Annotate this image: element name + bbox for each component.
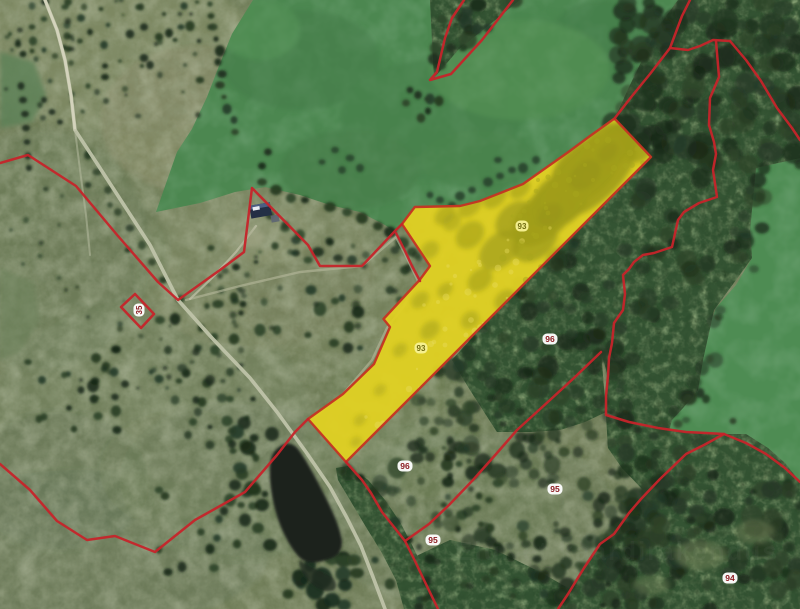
svg-text:93: 93 xyxy=(417,344,426,353)
svg-text:96: 96 xyxy=(545,334,555,344)
svg-text:95: 95 xyxy=(550,484,560,494)
svg-text:95: 95 xyxy=(428,535,438,545)
svg-text:35: 35 xyxy=(135,305,144,314)
svg-text:EluNet kaardirakendus: EluNet kaardirakendus xyxy=(455,536,779,566)
svg-text:93: 93 xyxy=(518,222,527,231)
svg-text:96: 96 xyxy=(400,461,410,471)
svg-text:94: 94 xyxy=(725,573,735,583)
